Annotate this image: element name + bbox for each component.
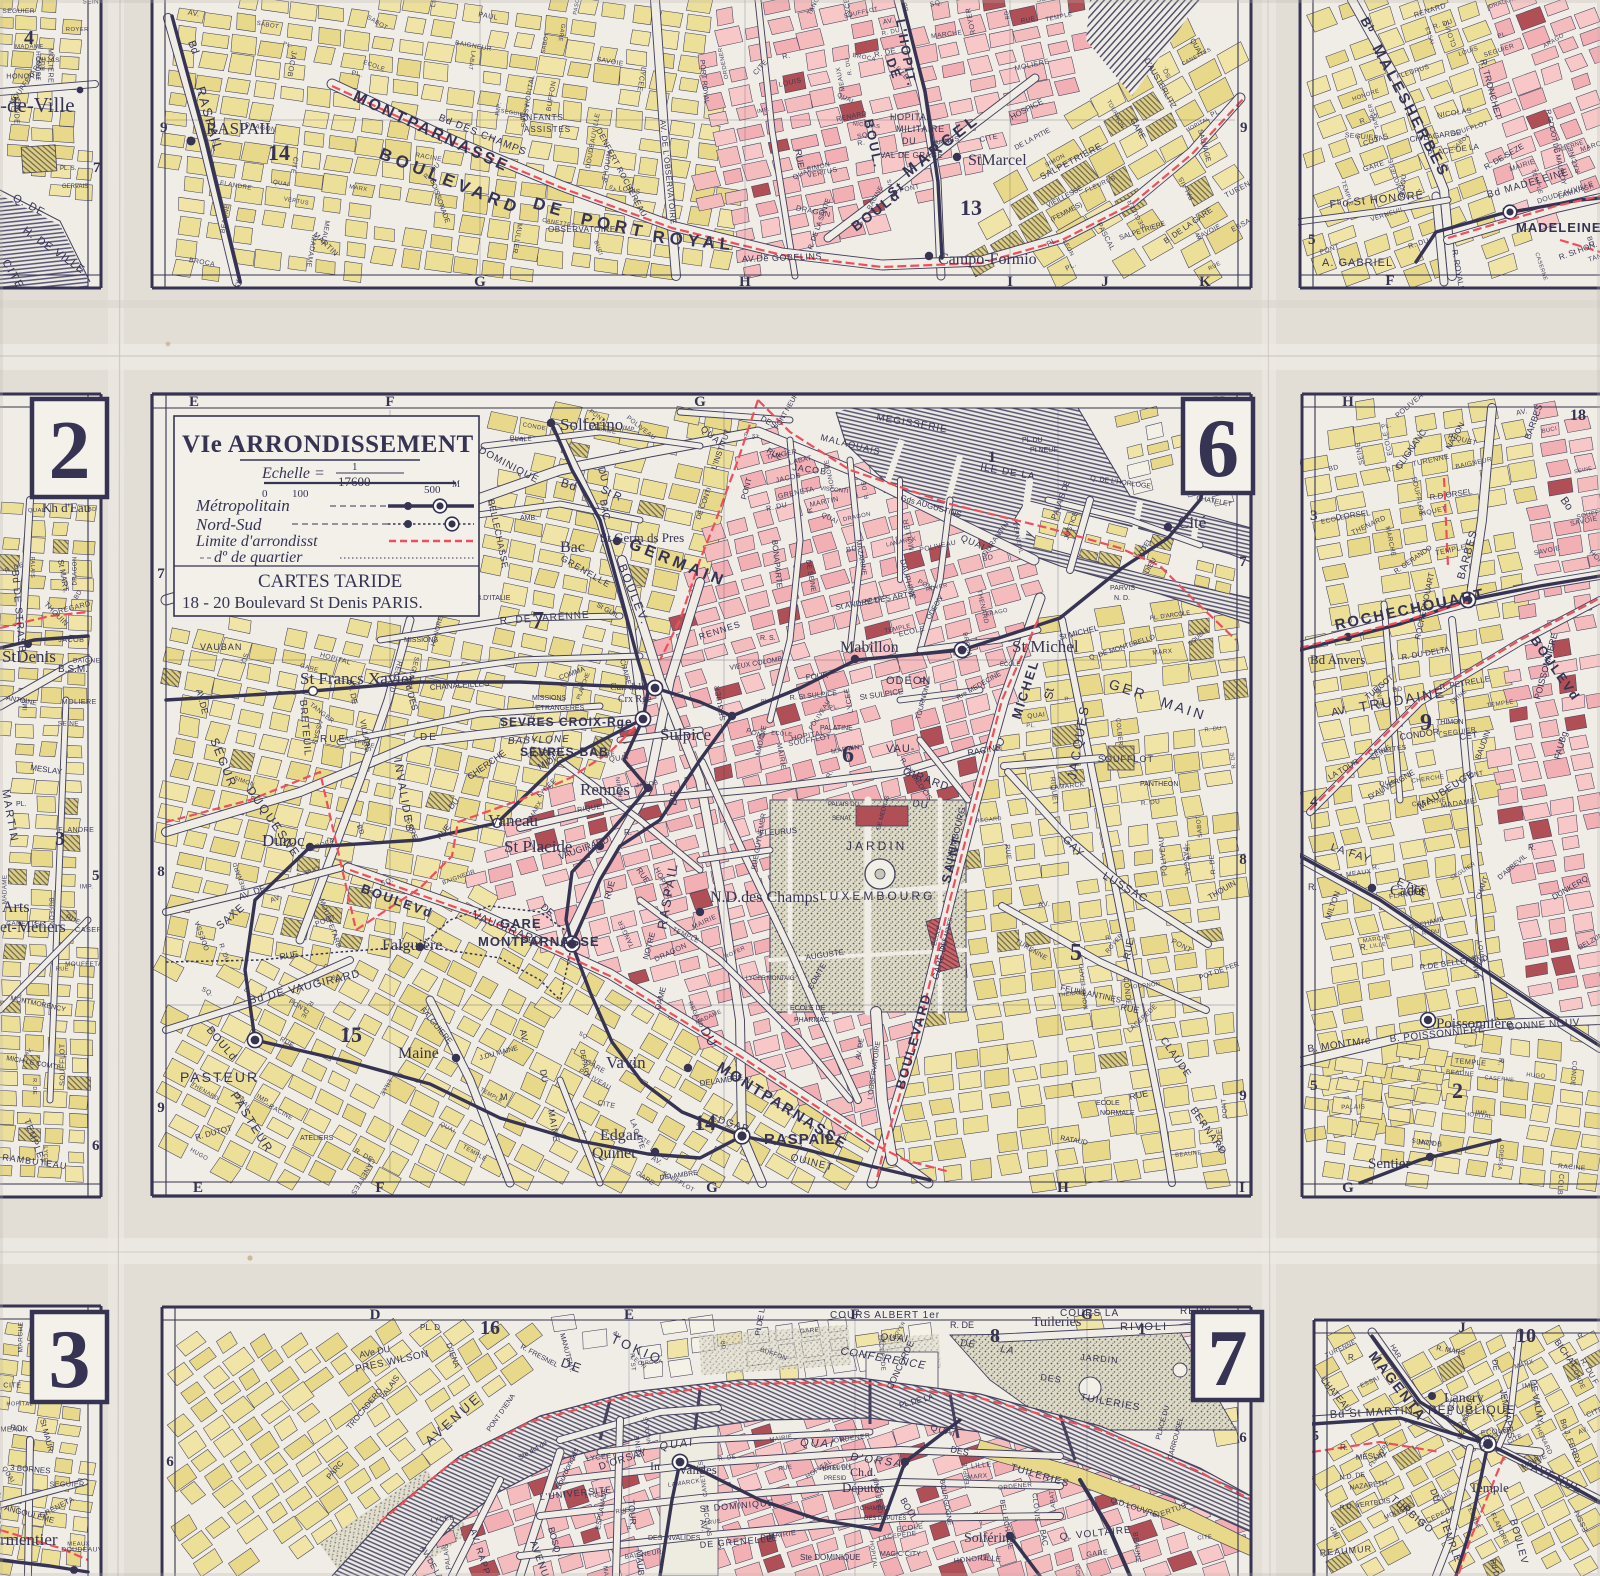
- svg-text:Sentier: Sentier: [1368, 1156, 1411, 1172]
- svg-text:Cité: Cité: [1178, 513, 1206, 532]
- svg-text:MOLIERE: MOLIERE: [47, 48, 56, 83]
- svg-text:BUFFON: BUFFON: [47, 898, 54, 925]
- svg-text:MARCHE: MARCHE: [17, 1321, 24, 1352]
- svg-text:I: I: [1239, 1180, 1245, 1196]
- svg-text:DES DEPUTES: DES DEPUTES: [864, 1516, 906, 1522]
- svg-text:4: 4: [1310, 794, 1318, 810]
- svg-text:PL.DU: PL.DU: [1022, 437, 1043, 444]
- svg-text:JARDIN: JARDIN: [846, 839, 907, 853]
- svg-text:9: 9: [157, 1100, 165, 1116]
- svg-text:Ste DOMINIQUE: Ste DOMINIQUE: [800, 1553, 860, 1562]
- svg-text:LYCEE: LYCEE: [42, 1146, 48, 1166]
- svg-text:HOPITAL: HOPITAL: [6, 1401, 33, 1407]
- svg-text:6: 6: [1197, 402, 1239, 495]
- svg-text:R. DE: R. DE: [31, 1078, 37, 1095]
- svg-text:PRESID: PRESID: [824, 1476, 847, 1482]
- svg-text:Tuileries: Tuileries: [1032, 1315, 1081, 1330]
- svg-text:BD: BD: [719, 1341, 726, 1350]
- svg-text:ECOLE: ECOLE: [1096, 1100, 1120, 1107]
- svg-text:1: 1: [988, 449, 996, 466]
- svg-text:Bd Anvers: Bd Anvers: [1310, 652, 1365, 667]
- svg-text:StMarcel: StMarcel: [968, 152, 1027, 169]
- svg-text:JACOB: JACOB: [58, 635, 84, 644]
- svg-text:ECOLE: ECOLE: [1000, 662, 1020, 668]
- svg-text:DE: DE: [420, 732, 438, 743]
- svg-text:G: G: [706, 1180, 718, 1196]
- svg-text:A. GABRIEL: A. GABRIEL: [1322, 257, 1393, 269]
- svg-text:Temple: Temple: [1470, 1480, 1509, 1495]
- svg-text:14: 14: [268, 140, 290, 165]
- svg-text:Vavin: Vavin: [606, 1053, 646, 1072]
- svg-text:G: G: [1081, 1307, 1093, 1323]
- svg-text:R.: R.: [1528, 843, 1536, 852]
- svg-text:PALAIS DU: PALAIS DU: [828, 802, 859, 808]
- svg-text:MAGIC CITY: MAGIC CITY: [880, 1551, 921, 1558]
- svg-text:PANTHEON: PANTHEON: [1140, 781, 1178, 788]
- svg-text:8: 8: [990, 1325, 1000, 1347]
- svg-text:StDenis: StDenis: [2, 647, 56, 666]
- svg-text:St Germ ds Pres: St Germ ds Pres: [600, 530, 684, 545]
- svg-text:PALATINE: PALATINE: [820, 725, 853, 732]
- svg-text:2: 2: [49, 404, 91, 497]
- svg-text:DE: DE: [960, 1338, 977, 1351]
- svg-text:E: E: [193, 1180, 203, 1196]
- svg-text:MOLIERE: MOLIERE: [62, 697, 97, 706]
- svg-text:8: 8: [1239, 852, 1247, 868]
- svg-text:RIVOLI: RIVOLI: [1120, 1321, 1168, 1333]
- svg-text:HOPITAL: HOPITAL: [890, 112, 932, 122]
- svg-text:Pt NEUF: Pt NEUF: [1030, 447, 1058, 454]
- svg-text:7: 7: [1239, 554, 1247, 570]
- svg-text:ECOLE DE: ECOLE DE: [790, 1005, 826, 1012]
- svg-text:MADELEINE: MADELEINE: [1516, 220, 1600, 235]
- svg-text:ATELIERS: ATELIERS: [300, 1135, 334, 1142]
- svg-text:PL. S.: PL. S.: [60, 166, 77, 172]
- svg-text:SOUFFLOT: SOUFFLOT: [1098, 754, 1154, 764]
- svg-text:6: 6: [166, 1454, 174, 1470]
- svg-text:R.: R.: [857, 138, 866, 147]
- svg-text:NORMALE: NORMALE: [1100, 1110, 1135, 1117]
- svg-text:PL. D: PL. D: [420, 1323, 440, 1332]
- svg-text:Quinet: Quinet: [592, 1145, 636, 1162]
- svg-text:HONORE: HONORE: [34, 51, 41, 81]
- svg-text:PALAIS: PALAIS: [29, 557, 35, 579]
- svg-text:MEAUX: MEAUX: [0, 1425, 28, 1434]
- svg-text:9: 9: [160, 120, 168, 136]
- svg-text:PARVIS: PARVIS: [1110, 585, 1135, 592]
- svg-text:Echelle =: Echelle =: [261, 465, 325, 482]
- svg-text:DES INVALIDES: DES INVALIDES: [648, 1535, 701, 1542]
- svg-text:18 - 20 Boulevard St Denis PAR: 18 - 20 Boulevard St Denis PARIS.: [182, 593, 423, 612]
- svg-text:SOUFFLOT: SOUFFLOT: [57, 1043, 66, 1086]
- svg-text:6: 6: [92, 1138, 100, 1154]
- svg-text:LYCEE MONTAIG: LYCEE MONTAIG: [746, 976, 795, 982]
- svg-text:Nord-Sud: Nord-Sud: [195, 515, 262, 534]
- svg-text:AV.: AV.: [1038, 899, 1051, 909]
- svg-text:MILITAIRE: MILITAIRE: [896, 124, 945, 134]
- svg-text:14: 14: [694, 1110, 716, 1135]
- svg-text:J: J: [1101, 274, 1109, 290]
- svg-text:CHAMBRE: CHAMBRE: [860, 1506, 890, 1512]
- svg-text:LA: LA: [1000, 1344, 1016, 1357]
- svg-text:PALAIS: PALAIS: [1341, 1104, 1365, 1112]
- svg-text:SEINE: SEINE: [58, 720, 79, 727]
- svg-text:DE: DE: [1490, 1359, 1501, 1372]
- svg-text:N. D.: N. D.: [1114, 595, 1130, 602]
- svg-text:R.: R.: [1496, 1058, 1506, 1067]
- svg-text:3: 3: [49, 1313, 91, 1406]
- svg-text:dº de quartier: dº de quartier: [214, 549, 303, 566]
- svg-text:E: E: [189, 394, 199, 410]
- svg-text:THIMON: THIMON: [1436, 719, 1464, 726]
- svg-text:5: 5: [92, 868, 100, 884]
- svg-text:6: 6: [1239, 1430, 1247, 1446]
- svg-text:PL.: PL.: [16, 801, 27, 808]
- svg-text:8: 8: [157, 864, 165, 880]
- svg-text:R.: R.: [1348, 1353, 1356, 1362]
- svg-text:F: F: [1385, 273, 1394, 289]
- svg-text:VAL DE GRACE: VAL DE GRACE: [880, 151, 943, 160]
- svg-text:Maine: Maine: [398, 1045, 439, 1062]
- svg-text:BD: BD: [1392, 686, 1403, 694]
- svg-text:Métropolitain: Métropolitain: [195, 496, 290, 515]
- svg-text:Kh d'Eau: Kh d'Eau: [42, 500, 91, 515]
- svg-text:D: D: [370, 1307, 381, 1323]
- svg-text:9: 9: [1239, 1088, 1247, 1104]
- svg-text:R. DE: R. DE: [950, 1320, 974, 1330]
- svg-text:10: 10: [1516, 1325, 1536, 1347]
- svg-text:9: 9: [1420, 710, 1432, 736]
- svg-text:5: 5: [1070, 940, 1082, 966]
- svg-text:BD: BD: [14, 98, 23, 109]
- svg-text:LUXEMBOURG: LUXEMBOURG: [820, 889, 935, 903]
- svg-text:F: F: [375, 1180, 384, 1196]
- svg-text:VAU-: VAU-: [886, 743, 915, 755]
- svg-text:IMP.: IMP.: [1522, 1382, 1537, 1390]
- svg-text:COURS ALBERT 1er: COURS ALBERT 1er: [830, 1310, 940, 1321]
- svg-text:N.D.des Champs: N.D.des Champs: [710, 889, 819, 906]
- svg-text:R.: R.: [1371, 862, 1380, 872]
- svg-text:DU: DU: [902, 136, 916, 146]
- svg-text:GERVAIS: GERVAIS: [62, 184, 88, 190]
- svg-text:SENAT: SENAT: [832, 816, 852, 822]
- svg-text:Crx Rge: Crx Rge: [618, 694, 652, 705]
- svg-text:SEVRES CROIX-Rge: SEVRES CROIX-Rge: [500, 715, 633, 729]
- svg-text:Mabillon: Mabillon: [840, 639, 899, 656]
- svg-text:ASSISTES: ASSISTES: [524, 125, 571, 134]
- svg-text:H: H: [739, 274, 751, 290]
- svg-text:9: 9: [1240, 120, 1248, 136]
- svg-text:R.: R.: [1353, 879, 1361, 887]
- svg-text:18: 18: [1570, 407, 1586, 424]
- svg-text:1: 1: [352, 461, 358, 473]
- svg-text:Falguière: Falguière: [382, 937, 442, 954]
- svg-text:QUAI: QUAI: [28, 508, 44, 514]
- svg-text:R.: R.: [1340, 1443, 1348, 1452]
- svg-text:Sulpice: Sulpice: [660, 725, 711, 744]
- svg-text:5: 5: [1308, 232, 1316, 248]
- svg-text:K: K: [1199, 274, 1211, 290]
- svg-text:DRAGON: DRAGON: [72, 556, 79, 585]
- svg-text:ETRANGERES: ETRANGERES: [536, 705, 585, 712]
- svg-text:G: G: [694, 394, 706, 410]
- svg-text:VAUBAN: VAUBAN: [200, 642, 242, 652]
- svg-text:BD: BD: [88, 507, 97, 513]
- svg-text:CARTES TARIDE: CARTES TARIDE: [258, 571, 402, 592]
- svg-text:IMP.: IMP.: [80, 884, 94, 891]
- svg-text:R.: R.: [1308, 882, 1317, 892]
- svg-text:CANETTES: CANETTES: [6, 921, 45, 928]
- svg-text:SEGUIER: SEGUIER: [50, 1479, 85, 1488]
- svg-text:FLANDRE: FLANDRE: [58, 826, 94, 834]
- svg-text:rmentier: rmentier: [0, 1530, 58, 1549]
- svg-text:MISSIONS: MISSIONS: [532, 695, 567, 702]
- svg-text:Limite d'arrondisst: Limite d'arrondisst: [195, 533, 318, 550]
- svg-text:H: H: [1342, 394, 1354, 410]
- svg-text:R. S.: R. S.: [760, 635, 776, 642]
- svg-text:R.: R.: [626, 1523, 633, 1530]
- svg-text:IMP.: IMP.: [23, 697, 29, 710]
- svg-text:7: 7: [532, 608, 544, 634]
- svg-text:ECOLE: ECOLE: [510, 437, 532, 444]
- svg-text:SEGUIER: SEGUIER: [2, 8, 34, 15]
- svg-text:H: H: [1057, 1180, 1069, 1196]
- svg-text:100: 100: [292, 488, 309, 500]
- svg-text:In: In: [650, 1459, 660, 1473]
- svg-text:7: 7: [157, 566, 165, 582]
- svg-text:I: I: [1007, 274, 1013, 290]
- svg-text:7: 7: [1208, 1315, 1248, 1403]
- svg-text:Campo-Formio: Campo-Formio: [938, 251, 1037, 268]
- svg-text:RUE: RUE: [56, 967, 69, 973]
- svg-text:5: 5: [1310, 1078, 1318, 1094]
- svg-text:G: G: [1342, 1180, 1354, 1196]
- svg-text:PHARMAC.: PHARMAC.: [794, 1017, 831, 1024]
- svg-text:13: 13: [960, 195, 982, 220]
- svg-text:15: 15: [340, 1022, 362, 1047]
- svg-text:AMB.: AMB.: [520, 515, 537, 522]
- svg-text:B.S.M.: B.S.M.: [58, 664, 88, 675]
- svg-text:G: G: [474, 274, 486, 290]
- svg-text:R.: R.: [1064, 696, 1071, 703]
- svg-text:7: 7: [93, 160, 101, 176]
- svg-text:QUAI: QUAI: [800, 1437, 835, 1450]
- svg-text:500: 500: [424, 484, 441, 496]
- svg-text:R.: R.: [624, 828, 632, 837]
- svg-text:M: M: [452, 479, 460, 489]
- svg-text:2: 2: [1452, 1078, 1463, 1103]
- svg-text:CITE: CITE: [3, 1380, 21, 1389]
- svg-text:3: 3: [1310, 508, 1318, 524]
- svg-text:17600: 17600: [338, 474, 371, 489]
- svg-text:VIe ARRONDISSEMENT: VIe ARRONDISSEMENT: [182, 431, 474, 458]
- svg-text:J: J: [1458, 1320, 1466, 1336]
- svg-text:E: E: [624, 1307, 634, 1323]
- svg-text:PL.: PL.: [1026, 723, 1036, 729]
- svg-text:F: F: [385, 394, 394, 410]
- svg-text:Ch.d.: Ch.d.: [850, 1465, 876, 1479]
- svg-text:MADAME: MADAME: [15, 45, 44, 51]
- svg-text:ROYER: ROYER: [66, 27, 89, 33]
- svg-text:F: F: [850, 1307, 859, 1323]
